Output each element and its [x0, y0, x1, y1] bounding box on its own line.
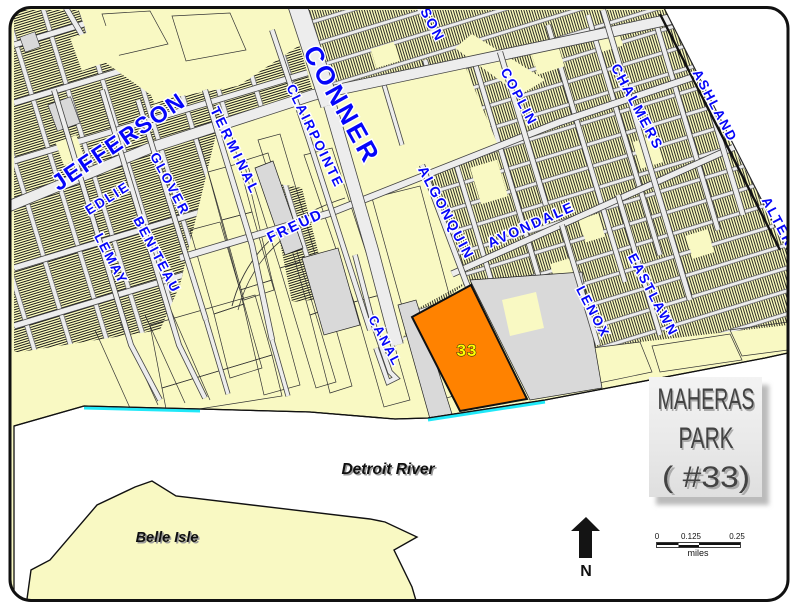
svg-text:PARK: PARK [679, 422, 734, 455]
svg-text:Detroit River: Detroit River [341, 461, 435, 478]
svg-text:0.125: 0.125 [681, 532, 702, 541]
svg-text:0.25: 0.25 [729, 532, 745, 541]
svg-text:Belle Isle: Belle Isle [136, 530, 199, 546]
svg-text:0: 0 [655, 532, 660, 541]
svg-text:( #33): ( #33) [662, 461, 750, 494]
svg-text:miles: miles [687, 548, 709, 558]
svg-text:N: N [580, 563, 592, 580]
svg-text:MAHERAS: MAHERAS [658, 383, 755, 416]
svg-text:33: 33 [457, 341, 478, 360]
